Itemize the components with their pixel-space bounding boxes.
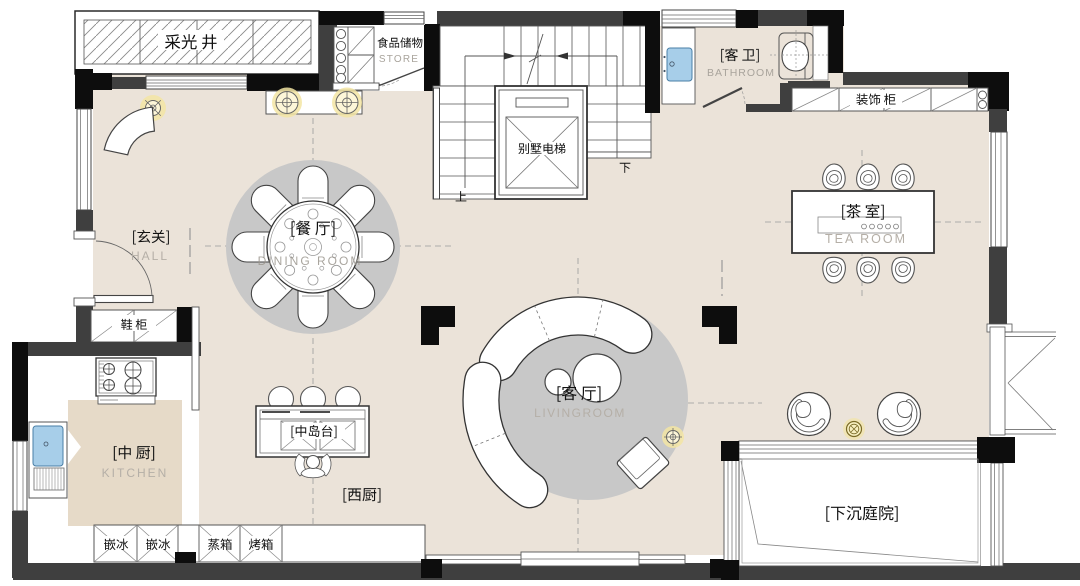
svg-text:LIVINGROOM: LIVINGROOM xyxy=(534,406,626,420)
svg-text:KITCHEN: KITCHEN xyxy=(102,466,169,480)
svg-text:TEA ROOM: TEA ROOM xyxy=(825,232,907,246)
svg-text:STORE: STORE xyxy=(379,54,419,65)
svg-text:BATHROOM: BATHROOM xyxy=(707,67,775,79)
svg-text:DINING ROOM: DINING ROOM xyxy=(258,254,363,268)
svg-text:HALL: HALL xyxy=(131,249,169,263)
